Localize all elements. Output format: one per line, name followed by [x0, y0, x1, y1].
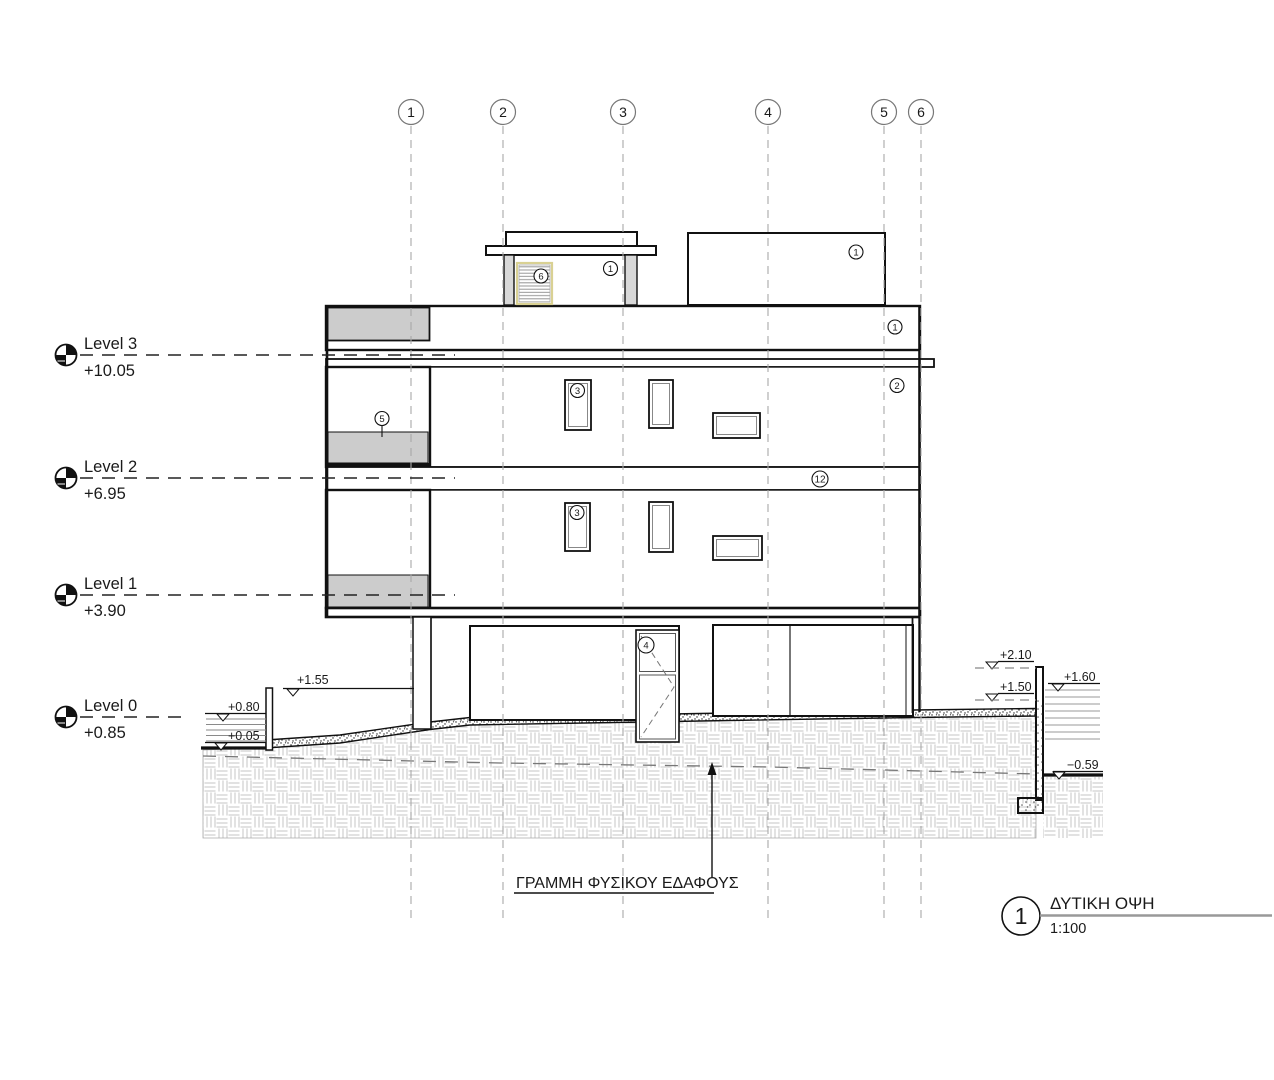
- grid-bubble-3: 3: [611, 100, 636, 125]
- svg-text:+0.80: +0.80: [228, 700, 260, 714]
- left-garden-wall: [266, 688, 273, 750]
- keynote-parapet: 1: [888, 320, 902, 334]
- keynote-louver: 6: [534, 269, 548, 283]
- grid-label-3: 3: [619, 104, 627, 120]
- keynote-door: 4: [638, 637, 654, 653]
- spot-neighbor: +1.60: [1048, 670, 1100, 691]
- level2-datum: Level 2 +6.95: [56, 458, 138, 503]
- svg-text:1: 1: [892, 323, 897, 334]
- window-upper-tall-2: [649, 380, 673, 428]
- level2-elevation: +6.95: [84, 485, 126, 503]
- view-scale: 1:100: [1050, 921, 1086, 937]
- terrain-hatch: [203, 716, 1036, 838]
- level3-elevation: +10.05: [84, 362, 135, 380]
- level0-datum: Level 0 +0.85: [56, 697, 138, 742]
- natural-ground-label: ΓΡΑΜΜΗ ΦΥΣΙΚΟΥ ΕΔΑΦΟΥΣ: [516, 875, 739, 892]
- view-name: ΔΥΤΙΚΗ ΟΨΗ: [1050, 894, 1155, 913]
- grid-bubble-5: 5: [872, 100, 897, 125]
- level0-elevation: +0.85: [84, 724, 126, 742]
- grid-label-1: 1: [407, 104, 415, 120]
- level1-datum: Level 1 +3.90: [56, 575, 138, 620]
- level2-name: Level 2: [84, 458, 137, 476]
- elevation-drawing: 1 2 3 4 5 6: [0, 0, 1274, 1080]
- window-lower-wide: [713, 536, 762, 560]
- spot-right-upper: +2.10: [975, 648, 1036, 669]
- spot-right-mid: +1.50: [975, 680, 1036, 701]
- level1-elevation: +3.90: [84, 602, 126, 620]
- grid-label-2: 2: [499, 104, 507, 120]
- grid-bubble-2: 2: [491, 100, 516, 125]
- svg-text:12: 12: [814, 475, 826, 486]
- window-lower-tall-2: [649, 502, 673, 552]
- window-upper-wide: [713, 413, 760, 438]
- level1-name: Level 1: [84, 575, 137, 593]
- keynote-facade-upper: 2: [890, 379, 904, 393]
- grid-label-5: 5: [880, 104, 888, 120]
- svg-text:+1.60: +1.60: [1064, 670, 1096, 684]
- parapet-gray-panel: [328, 308, 430, 341]
- keynote-window-upper: 3: [571, 384, 585, 398]
- spot-left-wall-top: +1.55: [283, 673, 414, 696]
- keynote-penthouse-left: 1: [604, 262, 618, 276]
- roof-slab: [326, 359, 934, 367]
- ground-opening-right: [713, 625, 913, 716]
- svg-text:1: 1: [608, 264, 613, 275]
- svg-text:+2.10: +2.10: [1000, 648, 1032, 662]
- svg-text:2: 2: [894, 381, 899, 392]
- svg-text:1: 1: [853, 248, 858, 259]
- penthouse-right: [688, 233, 885, 305]
- svg-text:+1.50: +1.50: [1000, 680, 1032, 694]
- svg-text:+1.55: +1.55: [297, 673, 329, 687]
- level0-name: Level 0: [84, 697, 137, 715]
- terrain-hatch-right: [1043, 777, 1103, 838]
- grid-bubble-1: 1: [399, 100, 424, 125]
- keynote-midband: 12: [812, 471, 828, 487]
- svg-text:−0.59: −0.59: [1067, 758, 1099, 772]
- building-elevation: [326, 232, 934, 729]
- keynote-penthouse-right: 1: [849, 245, 863, 259]
- svg-text:+0.05: +0.05: [228, 729, 260, 743]
- svg-text:3: 3: [575, 386, 580, 397]
- penthouse-left: [486, 232, 656, 305]
- neighbor-ground-hatch: [1045, 690, 1100, 739]
- grid-label-4: 4: [764, 104, 772, 120]
- grid-bubble-4: 4: [756, 100, 781, 125]
- grid-label-6: 6: [917, 104, 925, 120]
- keynote-window-lower: 3: [570, 506, 584, 520]
- svg-text:3: 3: [574, 508, 579, 519]
- svg-text:4: 4: [643, 641, 648, 652]
- svg-text:6: 6: [538, 272, 543, 283]
- level3-datum: Level 3 +10.05: [56, 335, 138, 380]
- grid-bubble-6: 6: [909, 100, 934, 125]
- balcony-lower: [326, 490, 430, 608]
- level3-name: Level 3: [84, 335, 137, 353]
- view-number: 1: [1015, 903, 1028, 929]
- ground-column: [413, 617, 431, 729]
- elevation-sheet: 1 2 3 4 5 6: [0, 0, 1274, 1080]
- roof-louver: [517, 263, 552, 304]
- svg-text:5: 5: [379, 414, 384, 425]
- view-title: 1 ΔΥΤΙΚΗ ΟΨΗ 1:100: [1002, 894, 1272, 937]
- spot-left-upper: +0.80: [205, 700, 266, 721]
